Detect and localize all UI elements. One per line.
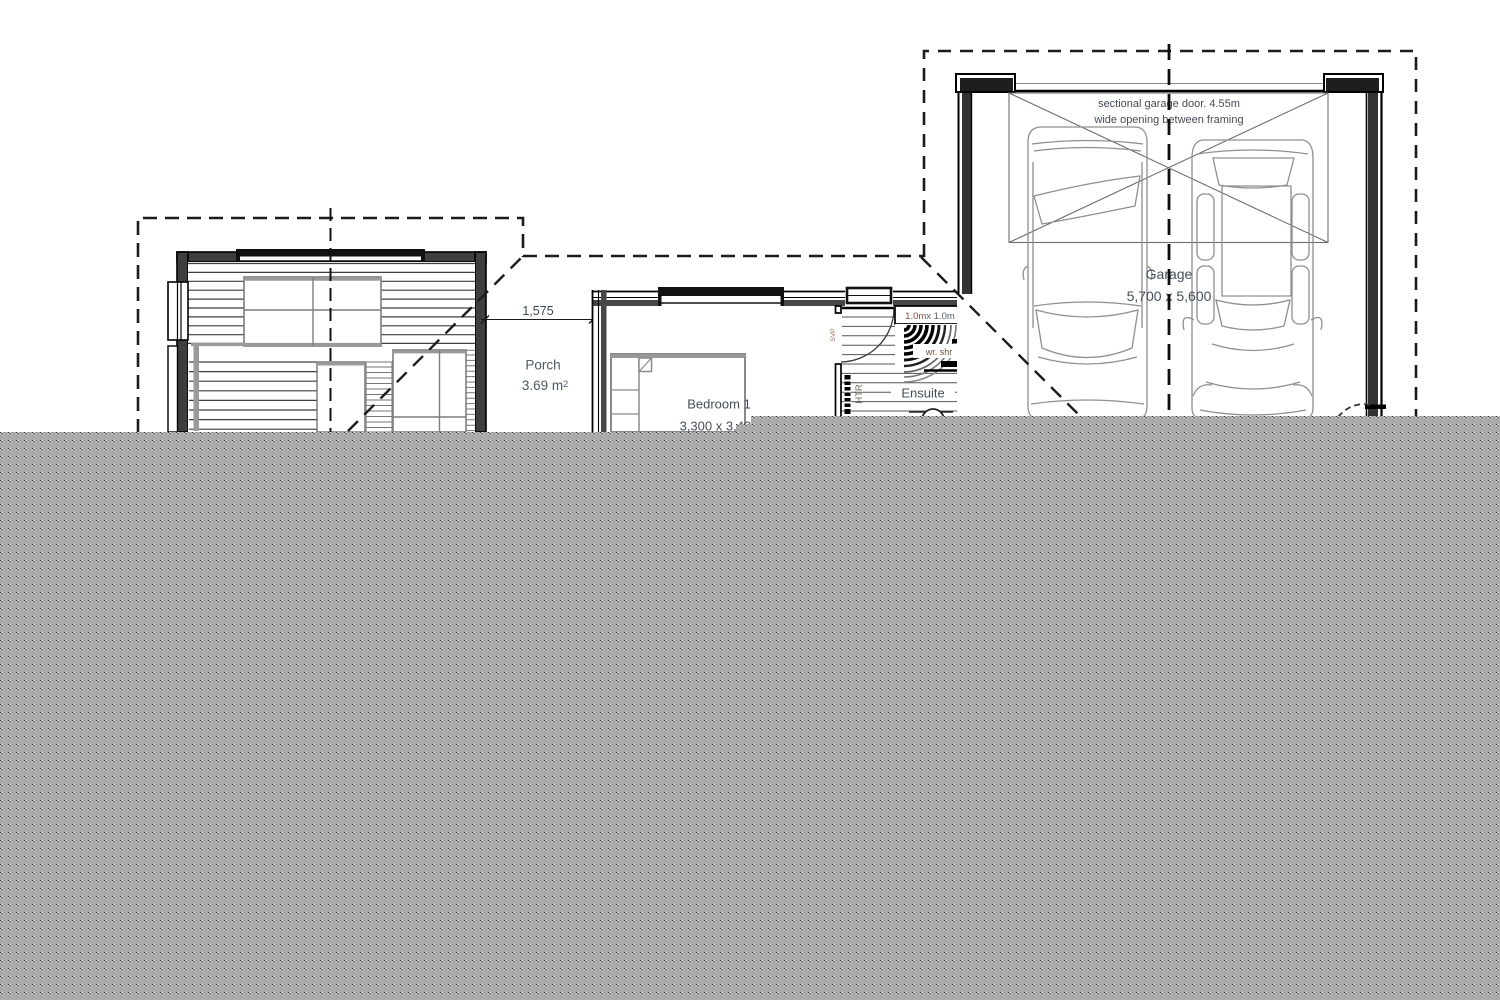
svg-text:Ensuite: Ensuite	[901, 386, 944, 401]
svg-text:HTR: HTR	[854, 384, 865, 404]
svg-text:wr. shr: wr. shr	[925, 347, 953, 357]
svg-text:SVP: SVP	[830, 328, 837, 341]
svg-text:1,575: 1,575	[522, 304, 553, 318]
svg-text:3.69 m2: 3.69 m2	[522, 378, 568, 393]
svg-text:1.0mx 1.0m: 1.0mx 1.0m	[905, 311, 955, 322]
svg-text:Bedroom 1: Bedroom 1	[687, 397, 751, 412]
svg-text:Porch: Porch	[525, 358, 560, 373]
